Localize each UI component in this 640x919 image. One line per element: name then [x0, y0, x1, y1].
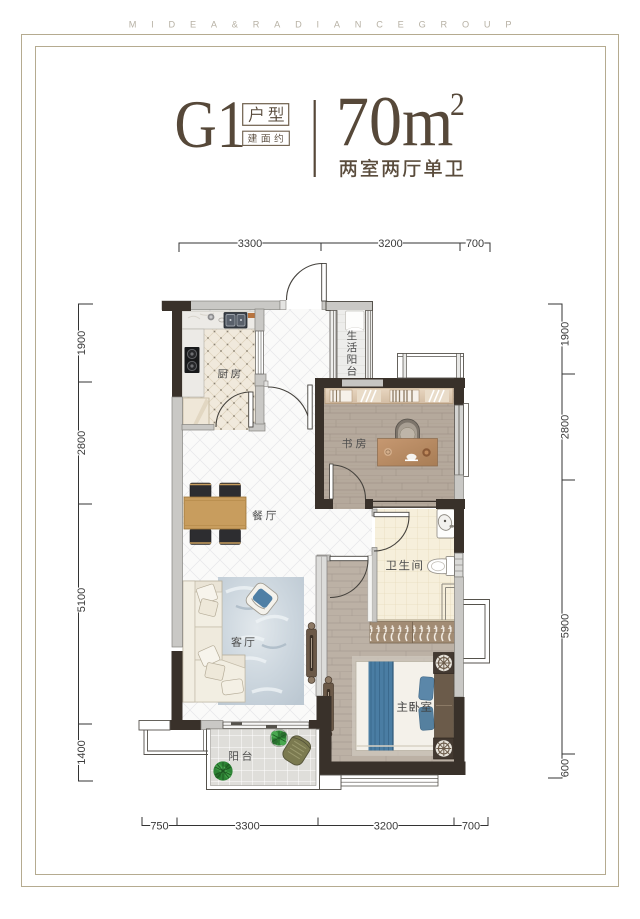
svg-text:1400: 1400 [76, 740, 88, 764]
svg-text:2800: 2800 [76, 431, 88, 455]
svg-text:700: 700 [466, 238, 484, 250]
svg-text:5900: 5900 [559, 614, 571, 638]
svg-text:1900: 1900 [559, 322, 571, 346]
svg-text:MIDEA&RADIANCEGROUP: MIDEA&RADIANCEGROUP [129, 20, 527, 30]
svg-text:G1: G1 [175, 86, 246, 162]
svg-text:1900: 1900 [76, 331, 88, 355]
svg-text:3300: 3300 [235, 820, 259, 832]
svg-text:2: 2 [450, 86, 465, 123]
svg-text:3300: 3300 [238, 238, 262, 250]
svg-text:3200: 3200 [378, 238, 402, 250]
svg-text:2800: 2800 [559, 415, 571, 439]
svg-text:600: 600 [559, 759, 571, 777]
svg-text:750: 750 [150, 820, 168, 832]
svg-text:70m: 70m [336, 82, 453, 161]
svg-text:3200: 3200 [374, 820, 398, 832]
svg-text:700: 700 [462, 820, 480, 832]
svg-text:5100: 5100 [76, 588, 88, 612]
